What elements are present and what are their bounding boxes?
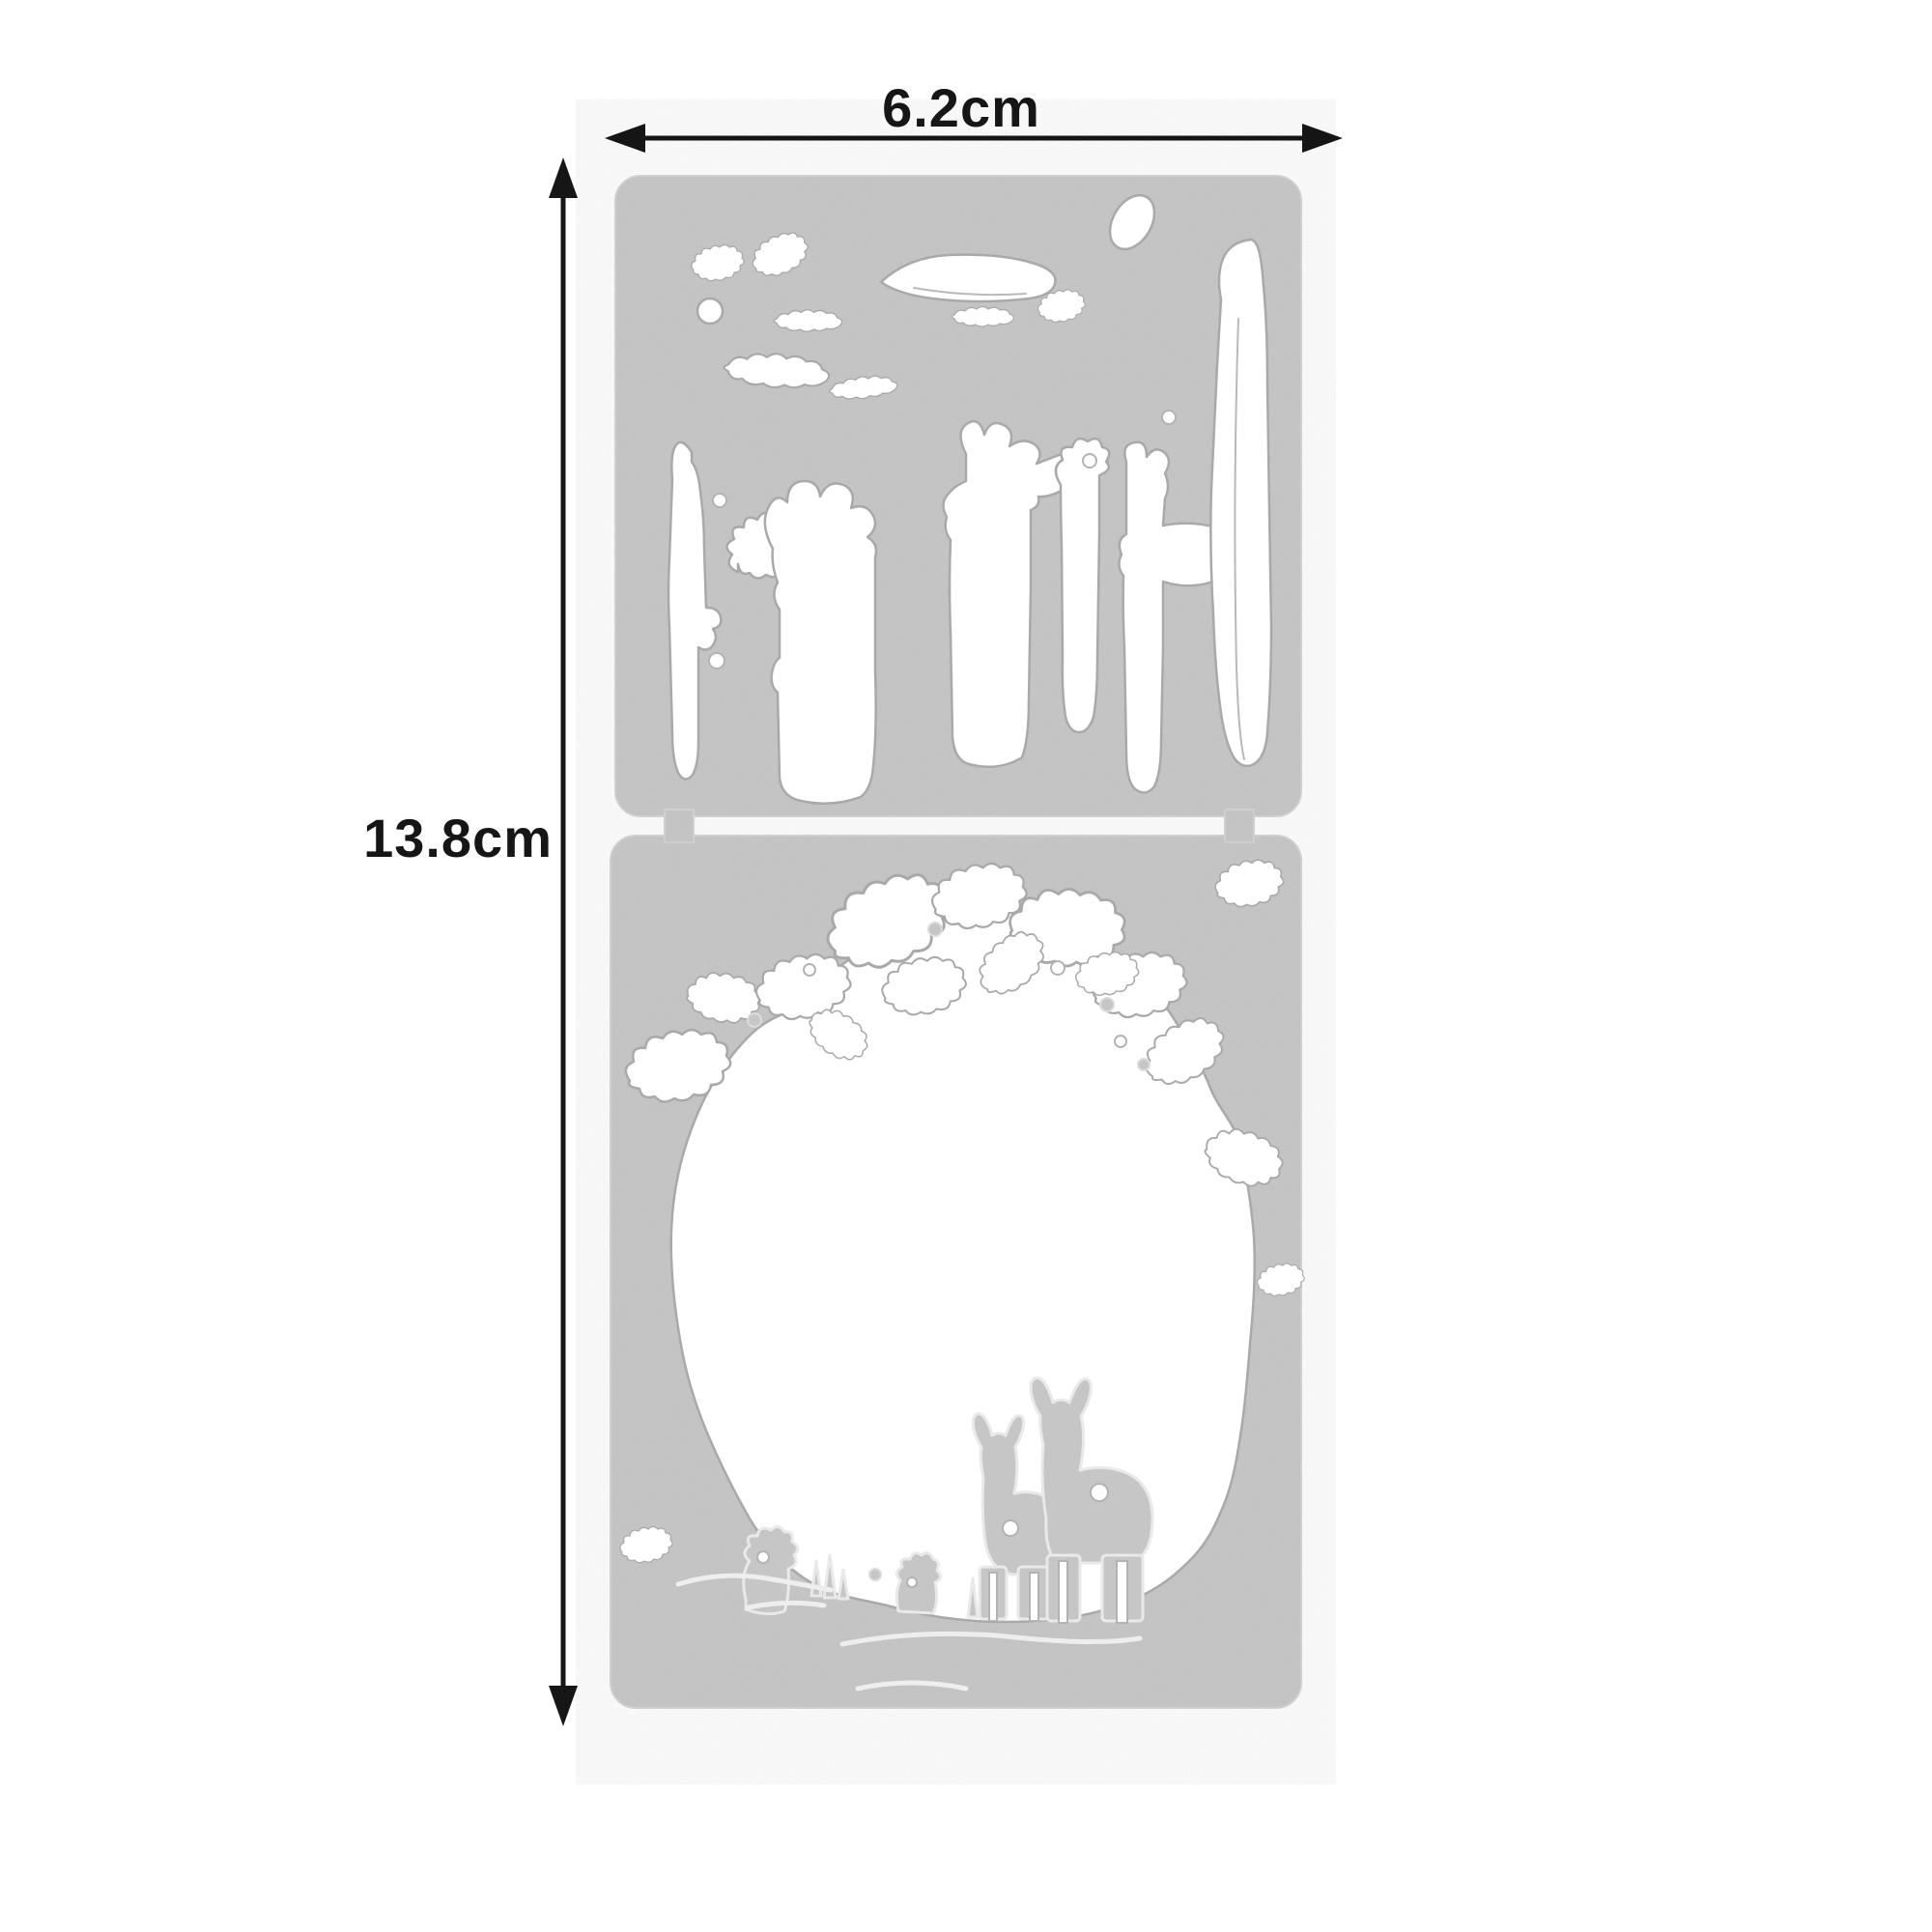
registration-hole [1091, 1484, 1108, 1501]
connector-tab-right [1225, 810, 1254, 842]
registration-hole [1138, 1059, 1150, 1070]
registration-hole [928, 923, 942, 936]
registration-hole [1003, 1520, 1018, 1536]
height-arrow-top-tip [549, 157, 578, 198]
registration-hole [869, 1569, 881, 1580]
tree-trunk-cutout [765, 481, 876, 804]
tree-trunk-cutout [1210, 240, 1271, 766]
foliage-cutout [697, 298, 723, 324]
width-arrow-left-tip [605, 124, 645, 153]
registration-hole [1083, 454, 1096, 468]
registration-hole [748, 1013, 761, 1027]
leg-slit-cut [1059, 1561, 1067, 1623]
registration-hole [757, 1551, 769, 1563]
registration-hole [1115, 1036, 1126, 1047]
width-dimension-label: 6.2cm [816, 81, 1106, 135]
leg-slit-cut [1030, 1573, 1038, 1621]
leg-slit-cut [1117, 1561, 1127, 1623]
foliage-cutout [952, 307, 1014, 327]
product-dimension-image: 6.2cm 13.8cm [0, 0, 1932, 1932]
bush [896, 1553, 940, 1613]
width-arrow-right-tip [1302, 124, 1343, 153]
foliage-cutout [774, 310, 841, 332]
registration-hole [1162, 411, 1176, 424]
registration-hole [907, 1577, 917, 1587]
height-arrow [549, 157, 578, 1726]
registration-hole [1100, 998, 1114, 1011]
height-arrow-bottom-tip [549, 1686, 578, 1726]
registration-hole [1051, 961, 1065, 975]
leg-slit-cut [989, 1573, 997, 1621]
registration-hole [709, 653, 724, 668]
die-cut-product-illustration [0, 0, 1932, 1932]
height-dimension-label: 13.8cm [307, 811, 553, 866]
registration-hole [804, 964, 815, 976]
connector-tab-left [665, 810, 694, 842]
registration-hole [713, 494, 726, 507]
